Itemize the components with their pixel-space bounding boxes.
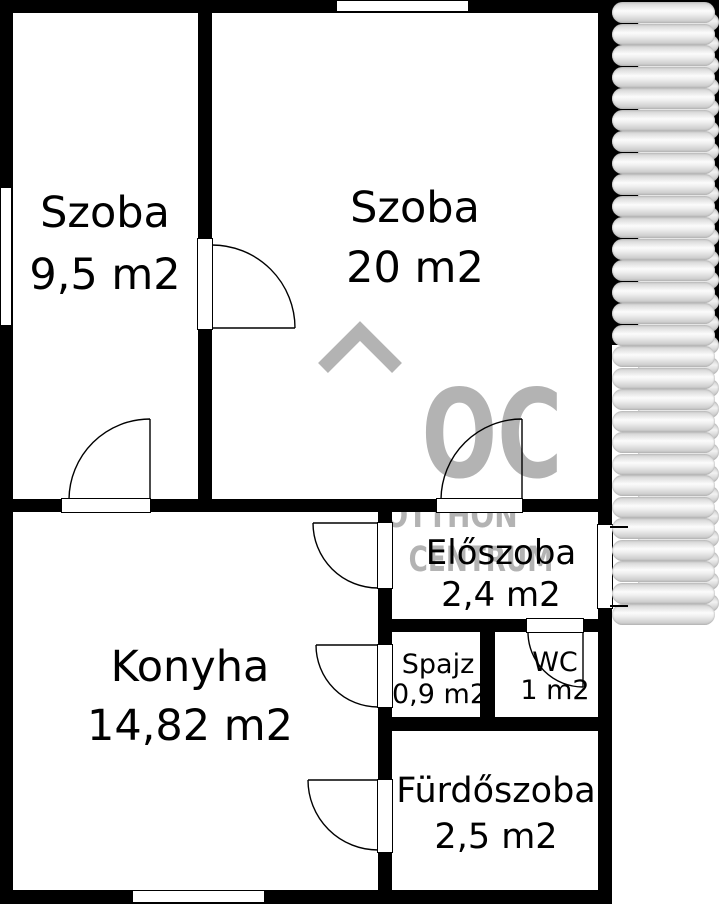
room-label-eloszoba: Előszoba 2,4 m2 — [395, 532, 607, 616]
spiral-segment — [612, 604, 715, 625]
room-name: Szoba — [10, 182, 200, 244]
room-label-szoba-1: Szoba 9,5 m2 — [10, 182, 200, 306]
room-name: Spajz — [392, 650, 484, 680]
spiral-segment — [612, 303, 715, 324]
room-area: 9,5 m2 — [10, 244, 200, 306]
room-label-szoba-2: Szoba 20 m2 — [265, 178, 565, 298]
door-arc — [441, 419, 522, 499]
room-name: WC — [500, 649, 610, 677]
entrance-jamb-tick — [610, 526, 628, 528]
spiral-segment — [612, 131, 715, 152]
spiral-binding — [612, 0, 719, 628]
spiral-segment — [612, 540, 715, 561]
door-arc — [313, 523, 378, 588]
spiral-segment — [612, 346, 715, 367]
spiral-segment — [612, 174, 715, 195]
spiral-segment — [612, 389, 715, 410]
room-label-furdoszoba: Fürdőszoba 2,5 m2 — [392, 768, 600, 860]
room-area: 14,82 m2 — [40, 697, 340, 756]
room-area: 2,4 m2 — [395, 574, 607, 616]
spiral-segment — [612, 561, 715, 582]
spiral-segment — [612, 110, 715, 131]
spiral-segment — [612, 153, 715, 174]
entrance-jamb-tick — [610, 605, 628, 607]
spiral-segment — [612, 454, 715, 475]
room-name: Előszoba — [395, 532, 607, 574]
spiral-segment — [612, 282, 715, 303]
spiral-segment — [612, 24, 715, 45]
room-name: Szoba — [265, 178, 565, 238]
room-area: 1 m2 — [500, 677, 610, 705]
room-label-wc: WC 1 m2 — [500, 649, 610, 705]
floorplan: OC OTTHON CENTRUM Szoba — [0, 0, 719, 904]
spiral-segment — [612, 411, 715, 432]
spiral-segment — [612, 432, 715, 453]
room-area: 2,5 m2 — [392, 814, 600, 860]
spiral-segment — [612, 45, 715, 66]
spiral-segment — [612, 260, 715, 281]
spiral-segment — [612, 368, 715, 389]
spiral-segment — [612, 497, 715, 518]
spiral-segment — [612, 583, 715, 604]
spiral-segment — [612, 2, 715, 23]
spiral-segment — [612, 67, 715, 88]
room-label-spajz: Spajz 0,9 m2 — [392, 650, 484, 710]
spiral-segment — [612, 88, 715, 109]
spiral-segment — [612, 196, 715, 217]
spiral-segment — [612, 217, 715, 238]
room-name: Fürdőszoba — [392, 768, 600, 814]
room-area: 20 m2 — [265, 238, 565, 298]
spiral-segment — [612, 475, 715, 496]
spiral-segment — [612, 518, 715, 539]
room-label-konyha: Konyha 14,82 m2 — [40, 638, 340, 756]
room-area: 0,9 m2 — [392, 680, 484, 710]
door-arc — [69, 419, 150, 499]
room-name: Konyha — [40, 638, 340, 697]
spiral-segment — [612, 325, 715, 346]
door-arc — [308, 780, 378, 850]
spiral-segment — [612, 239, 715, 260]
